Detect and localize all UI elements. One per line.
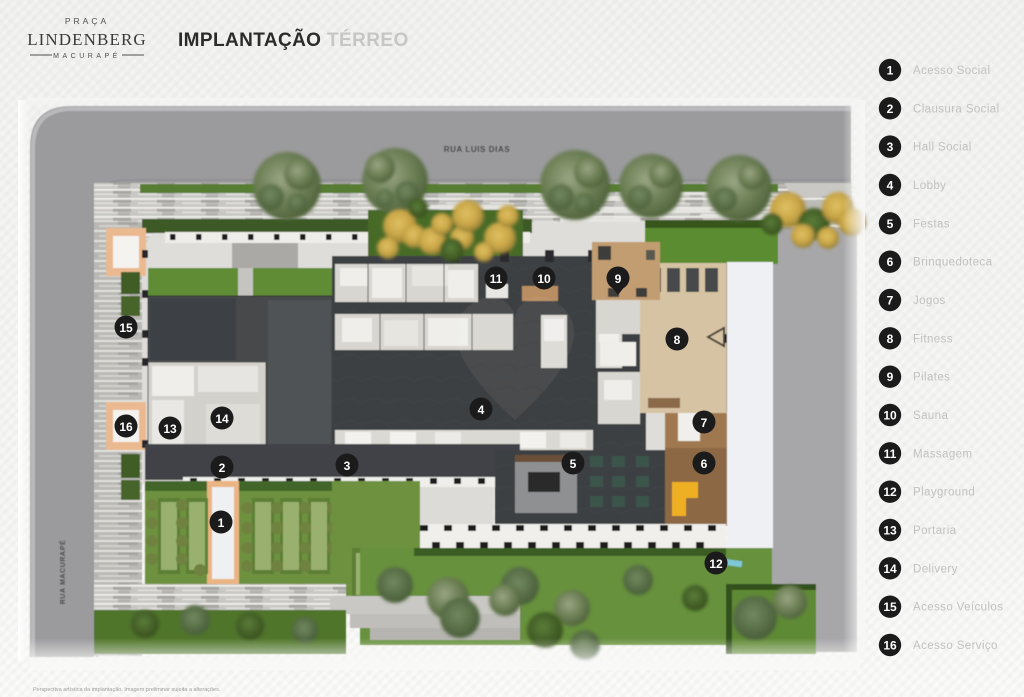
svg-text:2: 2	[887, 102, 894, 116]
svg-text:Playground: Playground	[913, 487, 975, 499]
svg-text:1: 1	[887, 64, 894, 78]
svg-text:11: 11	[490, 272, 503, 286]
svg-text:16: 16	[883, 639, 897, 653]
svg-text:Perspectiva artística da impla: Perspectiva artística da implantação. Im…	[33, 687, 221, 693]
svg-text:6: 6	[701, 457, 708, 471]
svg-text:7: 7	[887, 294, 894, 308]
svg-text:Brinquedoteca: Brinquedoteca	[913, 257, 993, 269]
svg-text:MACURAPÉ: MACURAPÉ	[53, 51, 121, 60]
svg-text:3: 3	[887, 140, 894, 154]
svg-text:Delivery: Delivery	[913, 563, 958, 575]
svg-text:Portaria: Portaria	[913, 525, 957, 537]
svg-text:10: 10	[883, 409, 897, 423]
svg-text:Festas: Festas	[913, 218, 950, 230]
svg-text:7: 7	[701, 416, 708, 430]
svg-text:Acesso Serviço: Acesso Serviço	[913, 640, 998, 652]
svg-text:Jogos: Jogos	[913, 295, 946, 307]
svg-text:1: 1	[218, 516, 225, 530]
svg-text:9: 9	[887, 370, 894, 384]
svg-text:5: 5	[570, 457, 577, 471]
svg-text:Fitness: Fitness	[913, 333, 953, 345]
svg-text:LINDENBERG: LINDENBERG	[27, 30, 147, 49]
svg-text:Pilates: Pilates	[913, 372, 950, 384]
svg-text:Hall Social: Hall Social	[913, 142, 972, 154]
svg-text:12: 12	[709, 557, 723, 571]
svg-text:11: 11	[884, 447, 897, 461]
svg-text:5: 5	[887, 217, 894, 231]
svg-text:Lobby: Lobby	[913, 180, 946, 192]
svg-text:4: 4	[478, 403, 485, 417]
svg-text:Clausura Social: Clausura Social	[913, 103, 1000, 115]
svg-text:Acesso Veículos: Acesso Veículos	[913, 602, 1003, 614]
svg-text:13: 13	[163, 422, 177, 436]
svg-text:6: 6	[887, 255, 894, 269]
svg-text:Sauna: Sauna	[913, 410, 948, 422]
svg-text:RUA MACURAPÉ: RUA MACURAPÉ	[58, 540, 67, 605]
svg-text:Acesso Social: Acesso Social	[913, 65, 990, 77]
svg-text:8: 8	[887, 332, 894, 346]
svg-text:9: 9	[615, 272, 622, 286]
svg-text:2: 2	[219, 461, 226, 475]
svg-text:14: 14	[883, 562, 897, 576]
svg-text:13: 13	[883, 524, 897, 538]
svg-text:14: 14	[215, 412, 229, 426]
svg-text:Massagem: Massagem	[913, 448, 972, 460]
svg-text:15: 15	[883, 600, 897, 614]
svg-text:8: 8	[674, 333, 681, 347]
svg-text:10: 10	[537, 272, 551, 286]
svg-text:PRAÇA: PRAÇA	[65, 16, 109, 26]
svg-text:RUA LUIS DIAS: RUA LUIS DIAS	[444, 145, 511, 154]
svg-text:3: 3	[344, 459, 351, 473]
svg-text:12: 12	[883, 485, 897, 499]
svg-text:4: 4	[887, 179, 894, 193]
svg-text:IMPLANTAÇÃO TÉRREO: IMPLANTAÇÃO TÉRREO	[178, 29, 409, 51]
svg-text:15: 15	[119, 321, 133, 335]
svg-text:16: 16	[119, 420, 133, 434]
